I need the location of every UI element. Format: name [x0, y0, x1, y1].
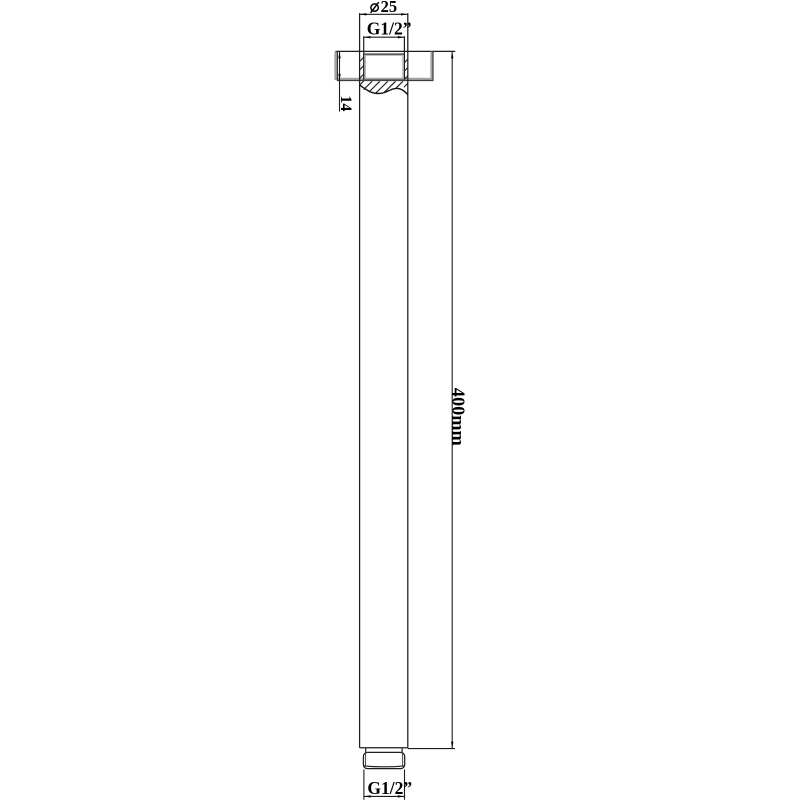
svg-text:14: 14: [337, 95, 354, 111]
svg-text:400mm: 400mm: [448, 388, 468, 446]
svg-text:G1/2”: G1/2”: [367, 778, 412, 798]
svg-text:G1/2”: G1/2”: [367, 18, 412, 38]
svg-text:25: 25: [381, 0, 398, 16]
